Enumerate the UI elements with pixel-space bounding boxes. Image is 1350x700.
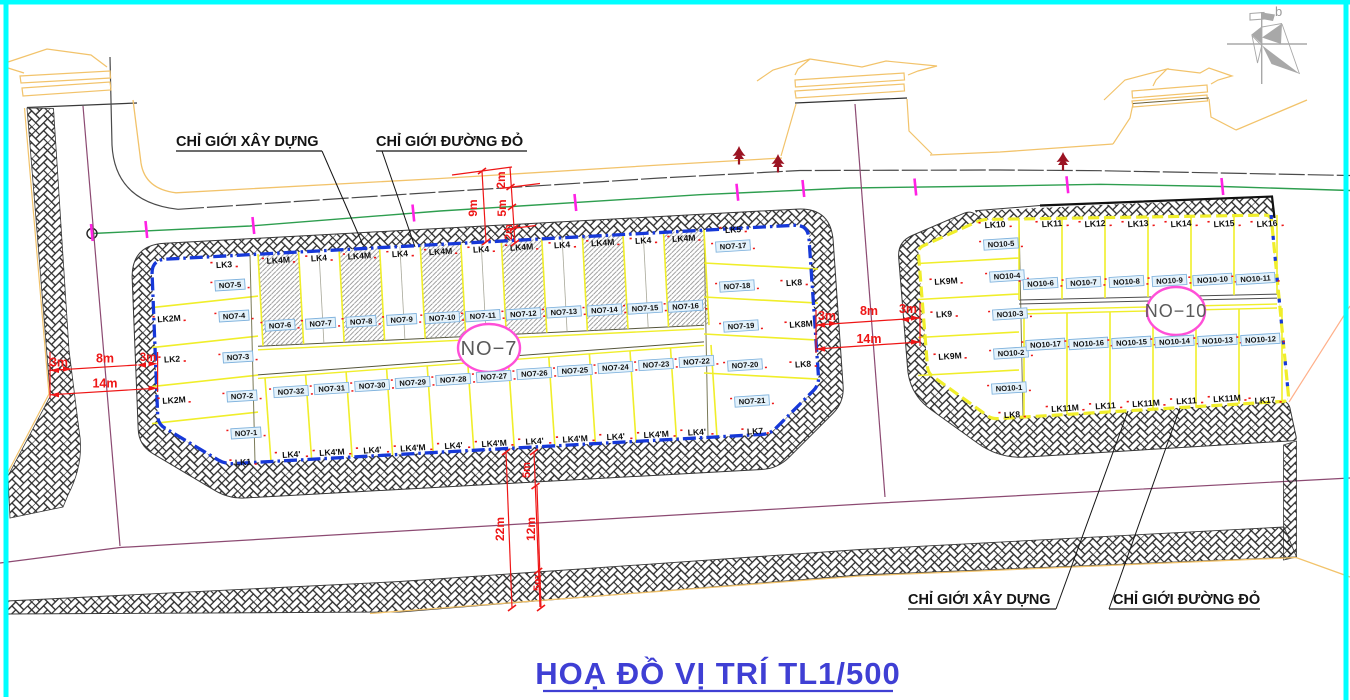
svg-text:LK2: LK2 [164, 354, 181, 365]
svg-text:NO7-24: NO7-24 [602, 362, 630, 373]
svg-text:22m: 22m [493, 517, 507, 541]
svg-text:NO10-1: NO10-1 [995, 383, 1023, 394]
svg-text:LK7: LK7 [747, 426, 764, 437]
svg-text:LK11: LK11 [1041, 218, 1062, 229]
svg-text:2m: 2m [494, 171, 508, 188]
svg-text:NO10-16: NO10-16 [1073, 338, 1104, 349]
svg-text:NO7-12: NO7-12 [510, 309, 537, 320]
svg-text:NO7-25: NO7-25 [561, 365, 589, 376]
svg-text:NO10-9: NO10-9 [1156, 275, 1183, 286]
svg-text:NO7-4: NO7-4 [223, 311, 247, 321]
svg-text:LK13: LK13 [1127, 218, 1149, 229]
svg-text:LK4: LK4 [554, 239, 571, 250]
svg-text:NO7-14: NO7-14 [591, 305, 619, 316]
svg-text:LK4'M: LK4'M [562, 433, 588, 445]
svg-text:NO10-17: NO10-17 [1030, 339, 1061, 350]
svg-text:LK5: LK5 [725, 224, 742, 235]
svg-text:NO7-29: NO7-29 [399, 377, 426, 388]
svg-text:LK4M: LK4M [591, 237, 615, 248]
svg-text:NO10-4: NO10-4 [993, 271, 1021, 282]
svg-text:LK4M: LK4M [347, 250, 371, 261]
svg-text:NO10-6: NO10-6 [1027, 278, 1054, 289]
svg-text:NO7-18: NO7-18 [723, 281, 750, 292]
svg-text:LK12: LK12 [1084, 218, 1106, 229]
svg-text:LK2M: LK2M [157, 313, 181, 324]
svg-text:NO7-6: NO7-6 [269, 320, 292, 330]
svg-text:2m: 2m [503, 224, 515, 240]
svg-text:LK11: LK11 [1095, 400, 1116, 411]
svg-text:NO7-5: NO7-5 [219, 280, 243, 290]
svg-text:NO7-13: NO7-13 [550, 307, 577, 318]
svg-text:LK9M: LK9M [938, 350, 962, 361]
svg-text:NO7-11: NO7-11 [469, 311, 496, 322]
svg-text:LK4M: LK4M [672, 233, 696, 244]
svg-text:NO7-21: NO7-21 [738, 396, 766, 407]
svg-text:NO7-19: NO7-19 [727, 321, 754, 332]
svg-text:LK11M: LK11M [1051, 402, 1079, 414]
svg-text:14m: 14m [92, 377, 117, 391]
svg-text:LK4': LK4' [525, 436, 544, 447]
svg-text:LK8M: LK8M [789, 318, 813, 329]
svg-text:LK4: LK4 [473, 244, 490, 255]
svg-text:LK4M: LK4M [266, 254, 290, 265]
svg-text:LK4M: LK4M [429, 246, 453, 257]
svg-text:LK4': LK4' [687, 427, 706, 438]
svg-text:CHỈ GIỚI ĐƯỜNG ĐỎ: CHỈ GIỚI ĐƯỜNG ĐỎ [1113, 590, 1260, 608]
svg-text:CHỈ GIỚI XÂY DỰNG: CHỈ GIỚI XÂY DỰNG [908, 590, 1051, 608]
svg-text:LK11M: LK11M [1132, 397, 1160, 409]
svg-text:NO10-3: NO10-3 [996, 309, 1023, 320]
svg-text:NO7-9: NO7-9 [390, 315, 413, 325]
svg-text:NO7-3: NO7-3 [227, 352, 250, 362]
svg-text:NO10-7: NO10-7 [1070, 277, 1097, 288]
svg-text:LK4'M: LK4'M [643, 429, 669, 441]
svg-text:3m: 3m [899, 302, 917, 316]
svg-text:LK9: LK9 [936, 309, 953, 320]
svg-text:NO−10: NO−10 [1145, 301, 1208, 321]
svg-text:LK17: LK17 [1254, 394, 1276, 405]
svg-text:8m: 8m [860, 304, 878, 318]
svg-text:NO7-1: NO7-1 [235, 428, 259, 438]
svg-text:NO7-8: NO7-8 [350, 317, 373, 327]
svg-text:LK4'M: LK4'M [400, 442, 426, 454]
svg-text:LK16: LK16 [1256, 218, 1278, 229]
svg-text:3m: 3m [140, 352, 157, 364]
svg-text:LK4M: LK4M [510, 241, 534, 252]
svg-text:NO7-23: NO7-23 [642, 359, 669, 370]
svg-text:NO7-2: NO7-2 [231, 391, 254, 401]
svg-text:NO10-5: NO10-5 [987, 239, 1015, 250]
svg-text:LK4: LK4 [310, 252, 327, 263]
svg-text:14m: 14m [856, 332, 881, 346]
svg-text:NO7-22: NO7-22 [683, 356, 710, 367]
svg-text:LK4: LK4 [391, 248, 408, 259]
svg-text:NO7-15: NO7-15 [631, 303, 659, 314]
svg-text:NO10-12: NO10-12 [1245, 334, 1276, 345]
svg-text:LK9M: LK9M [934, 275, 958, 286]
svg-text:LK4': LK4' [282, 449, 301, 460]
svg-text:NO10-10: NO10-10 [1197, 274, 1228, 285]
svg-text:5m: 5m [521, 462, 533, 478]
svg-text:LK8: LK8 [1004, 409, 1021, 420]
svg-text:LK4'M: LK4'M [319, 446, 345, 458]
svg-text:3m: 3m [818, 309, 836, 323]
svg-text:NO7-32: NO7-32 [277, 386, 304, 397]
svg-text:HOẠ ĐỒ VỊ TRÍ TL1/500: HOẠ ĐỒ VỊ TRÍ TL1/500 [535, 655, 901, 691]
svg-text:LK4': LK4' [444, 440, 463, 451]
svg-text:b: b [1275, 4, 1282, 19]
svg-text:LK15: LK15 [1213, 218, 1235, 229]
svg-text:LK3: LK3 [216, 259, 233, 270]
svg-text:LK8: LK8 [795, 359, 812, 370]
svg-text:LK4'M: LK4'M [481, 438, 507, 450]
svg-text:LK11: LK11 [1176, 395, 1197, 406]
svg-text:NO7-31: NO7-31 [318, 383, 346, 394]
svg-text:5m: 5m [495, 199, 509, 216]
svg-text:LK4: LK4 [635, 235, 652, 246]
svg-text:NO−7: NO−7 [461, 338, 518, 360]
svg-text:LK11M: LK11M [1213, 393, 1241, 405]
svg-text:12m: 12m [524, 517, 538, 541]
svg-text:3m: 3m [50, 356, 68, 370]
svg-text:LK2M: LK2M [162, 394, 186, 405]
svg-text:8m: 8m [96, 352, 114, 366]
svg-text:NO7-27: NO7-27 [480, 371, 507, 382]
svg-text:NO7-7: NO7-7 [309, 318, 332, 328]
svg-text:NO7-30: NO7-30 [359, 380, 386, 391]
svg-text:NO7-28: NO7-28 [440, 374, 467, 385]
svg-text:NO10-8: NO10-8 [1113, 276, 1140, 287]
svg-text:LK4': LK4' [606, 431, 625, 442]
svg-text:LK4': LK4' [363, 444, 382, 455]
svg-text:NO7-26: NO7-26 [521, 368, 548, 379]
svg-text:LK10: LK10 [984, 219, 1006, 230]
svg-text:NO7-16: NO7-16 [672, 301, 699, 312]
svg-text:9m: 9m [466, 199, 480, 216]
svg-text:NO7-20: NO7-20 [731, 360, 758, 371]
svg-text:CHỈ GIỚI XÂY DỰNG: CHỈ GIỚI XÂY DỰNG [176, 132, 319, 150]
svg-text:LK14: LK14 [1170, 218, 1192, 229]
svg-text:NO10-13: NO10-13 [1202, 335, 1233, 346]
svg-text:LK1: LK1 [235, 457, 252, 468]
svg-text:NO10-2: NO10-2 [997, 348, 1024, 359]
svg-text:CHỈ GIỚI ĐƯỜNG ĐỎ: CHỈ GIỚI ĐƯỜNG ĐỎ [376, 132, 523, 150]
svg-text:5m: 5m [532, 575, 544, 591]
svg-text:NO7-17: NO7-17 [719, 241, 746, 252]
svg-text:NO7-10: NO7-10 [429, 313, 456, 324]
svg-text:LK8: LK8 [786, 277, 803, 288]
